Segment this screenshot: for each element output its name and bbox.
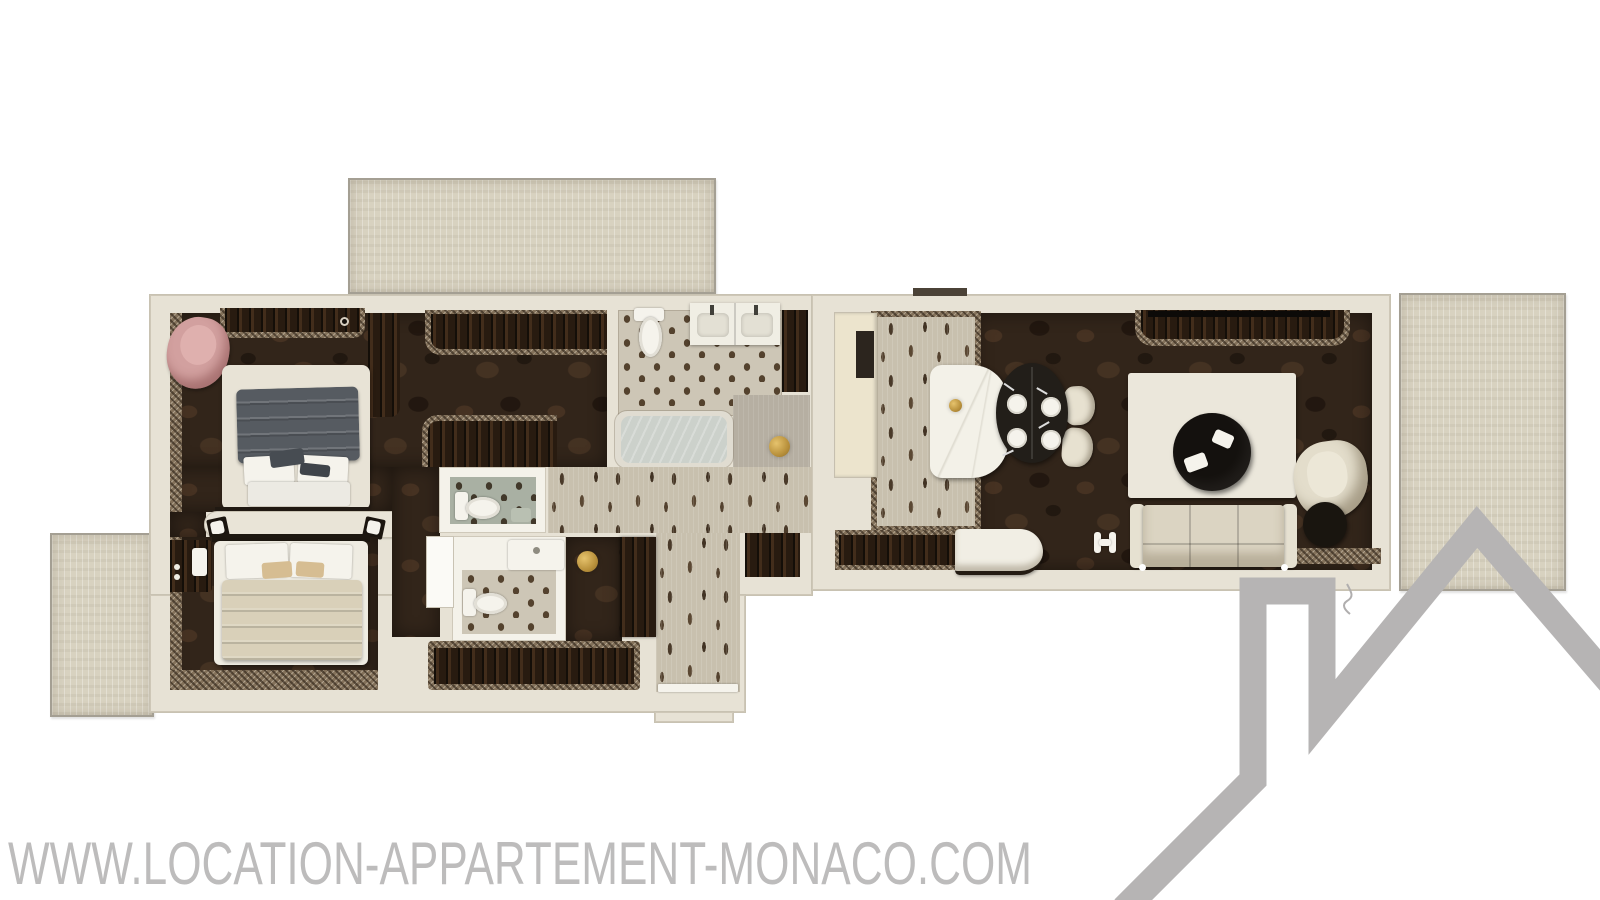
sconce-shade (210, 520, 225, 535)
armchair-rug-edge (1293, 548, 1381, 564)
wc2-room (453, 537, 565, 640)
bedroom1-side-wardrobe (368, 313, 400, 417)
sofa-foot (1281, 564, 1288, 571)
media-console-border (835, 530, 959, 570)
kitchen-appliance (856, 331, 874, 378)
white-door-panel (427, 537, 453, 607)
plate (1007, 428, 1027, 448)
armchair-cushion (1304, 449, 1350, 500)
hallway-carpet-horizontal (548, 467, 812, 533)
bathtub-basin (621, 416, 727, 463)
plate (1041, 430, 1061, 450)
vanity-basin (697, 313, 729, 337)
shower-floor (733, 395, 810, 468)
vanity-basin (741, 313, 773, 337)
wc2-toilet-bowl (474, 593, 507, 614)
vanity-faucet (754, 305, 758, 315)
entry-threshold (658, 684, 738, 692)
side-table-black (1303, 502, 1347, 547)
console-knob (340, 317, 349, 326)
bedroom1-mid-wardrobe (422, 415, 557, 467)
shower-light-gold (769, 436, 790, 457)
bedroom-passage-floor (170, 512, 206, 538)
watermark-text: WWW.LOCATION-APPARTEMENT-MONACO.COM (8, 830, 1032, 897)
bath-toilet-bowl (639, 317, 662, 357)
vanity-divider (734, 303, 736, 345)
bed-2-accent-pillow (296, 561, 325, 578)
entry-console (428, 641, 640, 690)
hall-closet-doors (745, 533, 800, 577)
wc2-vanity (508, 540, 564, 570)
media-console (839, 535, 959, 565)
table-seam (1031, 367, 1033, 459)
double-vanity (690, 303, 780, 345)
bathroom-cabinet (782, 310, 808, 392)
entry-door-step (655, 712, 733, 722)
right-terrace (1399, 293, 1566, 591)
hall-door-leaf (620, 537, 656, 637)
wc2-faucet (533, 547, 540, 554)
sofa-seam (1143, 543, 1284, 545)
console-knob (174, 564, 180, 570)
coffee-table (1173, 413, 1251, 491)
island-faucet-gold (949, 399, 962, 412)
entry-console-top (434, 648, 634, 684)
wardrobe-wood (431, 314, 607, 349)
wc1-basin (511, 508, 531, 522)
wardrobe-wood (428, 421, 557, 467)
hallway-carpet-vertical (656, 533, 740, 692)
bedroom2-tv (192, 548, 207, 576)
vanity-faucet (710, 305, 714, 315)
bathtub (615, 411, 733, 468)
sofa (1143, 505, 1284, 567)
sconce-shade (366, 520, 381, 535)
bed-1-sheet (248, 482, 350, 506)
plate (1041, 397, 1061, 417)
window-segment (913, 288, 967, 296)
floorplan-render: WWW.LOCATION-APPARTEMENT-MONACO.COM (0, 0, 1600, 900)
sofa-seam (1237, 505, 1239, 567)
h-side-table (1094, 532, 1116, 553)
h-table-bridge (1099, 539, 1111, 546)
tv-screen (1148, 311, 1330, 317)
plate (1007, 394, 1027, 414)
ceiling-light-gold (577, 551, 598, 572)
wc1-toilet-bowl (466, 497, 500, 519)
console-knob (174, 574, 180, 580)
chaise-lounge (955, 529, 1043, 575)
sofa-foot (1139, 564, 1146, 571)
bed-2-accent-pillow (261, 561, 292, 579)
left-balcony (50, 533, 154, 717)
wc1-room (440, 468, 545, 532)
bed-2-duvet-beige (222, 580, 362, 660)
armchair-cushion (177, 322, 219, 367)
sofa-arm-right (1282, 504, 1297, 568)
sofa-seam (1189, 505, 1191, 567)
top-terrace (348, 178, 716, 294)
bedroom2-carpet-edge (170, 670, 378, 690)
bedroom1-top-wardrobe (425, 310, 607, 355)
